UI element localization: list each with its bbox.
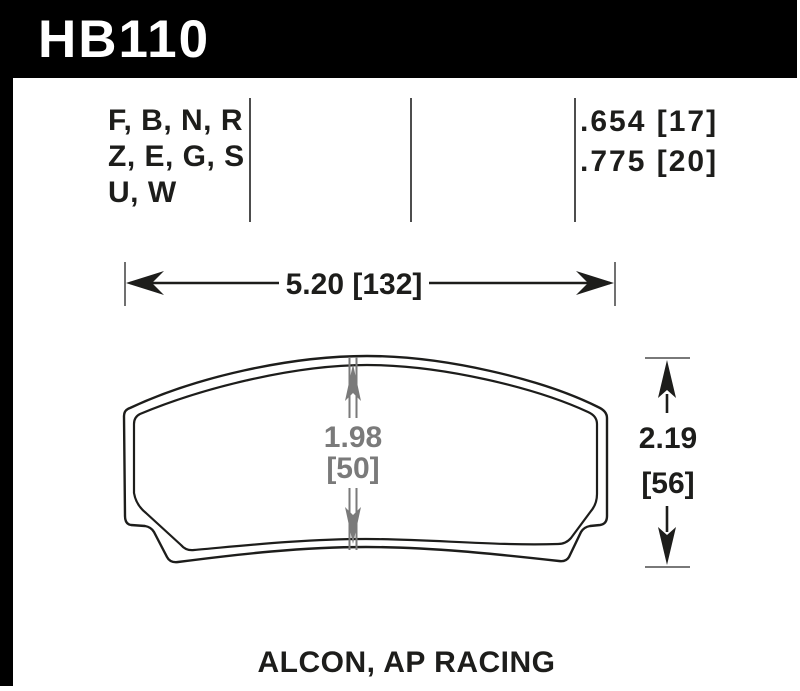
width-dimension: 5.20 [132] — [125, 262, 615, 306]
center-dimension-inches: 1.98 — [324, 421, 382, 454]
column-divider-2 — [410, 98, 412, 222]
width-dimension-label: 5.20 [132] — [286, 268, 423, 301]
center-dimension-mm: [50] — [326, 452, 379, 485]
pad-inner-outline — [134, 365, 597, 550]
height-dimension: 2.19 [56] — [639, 358, 697, 567]
height-dimension-mm: [56] — [641, 467, 694, 500]
width-arrowhead-right-icon — [576, 271, 614, 295]
column-divider-1 — [249, 98, 251, 222]
application-caption: ALCON, AP RACING — [13, 646, 800, 680]
height-dimension-inches: 2.19 — [639, 422, 697, 455]
height-arrowhead-down-icon — [658, 527, 676, 565]
center-dim-arrowhead-down-icon — [345, 507, 361, 544]
left-edge-strip — [0, 78, 13, 686]
pad-thickness-line-2: .775 [20] — [580, 142, 718, 182]
pad-outer-outline — [124, 356, 607, 562]
center-dim-arrowhead-up-icon — [345, 364, 361, 401]
pad-thickness-values: .654 [17] .775 [20] — [580, 102, 718, 182]
compound-codes-line-2: Z, E, G, S — [108, 139, 245, 175]
pad-thickness-line-1: .654 [17] — [580, 102, 718, 142]
height-arrowhead-up-icon — [658, 360, 676, 398]
compound-codes-line-1: F, B, N, R — [108, 103, 245, 139]
compound-codes-line-3: U, W — [108, 175, 245, 211]
pad-outline — [124, 356, 607, 562]
center-dimension: 1.98 [50] — [324, 357, 382, 550]
width-arrowhead-left-icon — [126, 271, 164, 295]
header-bar: HB110 — [0, 0, 797, 78]
compound-codes: F, B, N, R Z, E, G, S U, W — [108, 103, 245, 211]
brake-pad-spec-sheet: { "header": { "part_number": "HB110" }, … — [0, 0, 800, 691]
part-number: HB110 — [38, 13, 210, 66]
column-divider-3 — [574, 98, 576, 222]
